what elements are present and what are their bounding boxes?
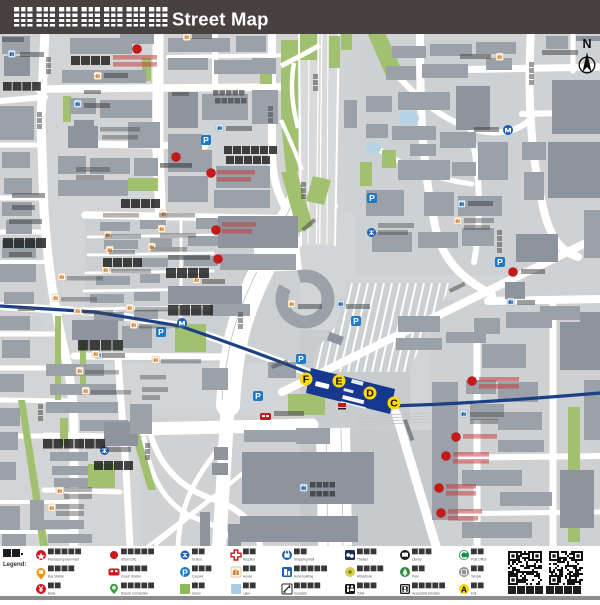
svg-text:Bank: Bank <box>48 592 56 596</box>
svg-text:Temple: Temple <box>471 575 482 579</box>
svg-text:Toilet: Toilet <box>357 592 365 596</box>
svg-text:Bus Station: Bus Station <box>48 575 65 579</box>
svg-text:Bicycle Connection: Bicycle Connection <box>121 592 148 596</box>
svg-text:¥: ¥ <box>39 584 44 594</box>
svg-text:N: N <box>582 37 591 51</box>
svg-text:F: F <box>303 374 310 386</box>
svg-text:Library: Library <box>412 558 422 562</box>
svg-text:Carpark: Carpark <box>192 575 204 579</box>
svg-text:Attractions: Attractions <box>357 575 372 579</box>
svg-text:D: D <box>366 388 374 400</box>
svg-text:Park: Park <box>412 575 419 579</box>
svg-text:School: School <box>192 558 202 562</box>
svg-text:Hospital: Hospital <box>243 558 255 562</box>
svg-text:A: A <box>461 584 467 594</box>
svg-text:Street Map: Street Map <box>172 9 269 30</box>
svg-text:Legend:: Legend: <box>3 562 26 568</box>
svg-text:Post Office: Post Office <box>471 558 487 562</box>
svg-text:Hotel building: Hotel building <box>294 575 314 579</box>
svg-text:Theater: Theater <box>357 558 369 562</box>
svg-text:C: C <box>390 398 398 410</box>
svg-text:Street Offc: Street Offc <box>121 558 137 562</box>
svg-text:Green: Green <box>192 592 201 596</box>
svg-text:Coach Station: Coach Station <box>121 575 141 579</box>
svg-text:Shopping Mall: Shopping Mall <box>294 558 314 562</box>
svg-text:P: P <box>182 567 188 577</box>
svg-text:Municipal government: Municipal government <box>48 558 79 562</box>
svg-text:E: E <box>335 376 342 388</box>
svg-text:Exit: Exit <box>471 592 476 596</box>
svg-text:Accessible Elevator: Accessible Elevator <box>412 592 441 596</box>
svg-text:House: House <box>243 575 252 579</box>
svg-text:Escalator: Escalator <box>294 592 308 596</box>
svg-text:Lake: Lake <box>243 592 250 596</box>
